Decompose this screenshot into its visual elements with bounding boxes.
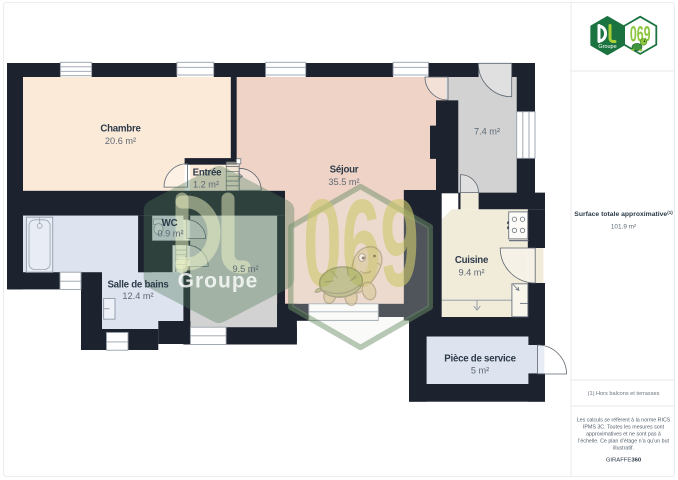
svg-text:Chambre: Chambre [100,124,141,135]
svg-text:12.4 m²: 12.4 m² [122,291,153,301]
svg-text:20.6 m²: 20.6 m² [105,136,136,146]
svg-text:(1) Hors balcons et terrasses: (1) Hors balcons et terrasses [588,391,660,397]
svg-text:5 m²: 5 m² [471,366,489,376]
svg-text:1.2 m²: 1.2 m² [193,180,219,190]
svg-text:Séjour: Séjour [330,165,359,176]
svg-text:Groupe: Groupe [598,44,616,50]
svg-text:Surface totale approximative(1: Surface totale approximative(1) [574,210,673,218]
svg-text:l’échelle. Ce plan d’étage n’a: l’échelle. Ce plan d’étage n’a qu’un but [578,439,670,445]
svg-text:approximatives et ne sont pas: approximatives et ne sont pas à [586,432,661,438]
svg-text:Cuisine: Cuisine [455,255,489,266]
svg-text:0.9 m²: 0.9 m² [157,229,183,239]
svg-text:illustratif.: illustratif. [613,446,634,452]
svg-text:9.4 m²: 9.4 m² [458,268,484,278]
svg-text:35.5 m²: 35.5 m² [328,177,359,187]
svg-text:101.9 m²: 101.9 m² [611,224,636,231]
svg-text:Les calculs se réfèrent à la n: Les calculs se réfèrent à la norme RICS [577,418,671,424]
svg-text:Entrée: Entrée [193,168,223,179]
svg-text:IPMS 3C. Toutes les mesures so: IPMS 3C. Toutes les mesures sont [583,425,665,431]
svg-text:WC: WC [162,218,178,229]
svg-text:Pièce de service: Pièce de service [444,354,516,365]
svg-text:GIRAFFE360: GIRAFFE360 [606,458,642,464]
svg-text:Salle de bains: Salle de bains [107,280,168,291]
svg-text:069: 069 [303,175,419,313]
svg-text:7.4 m²: 7.4 m² [474,127,500,137]
svg-text:9.5 m²: 9.5 m² [232,264,258,274]
